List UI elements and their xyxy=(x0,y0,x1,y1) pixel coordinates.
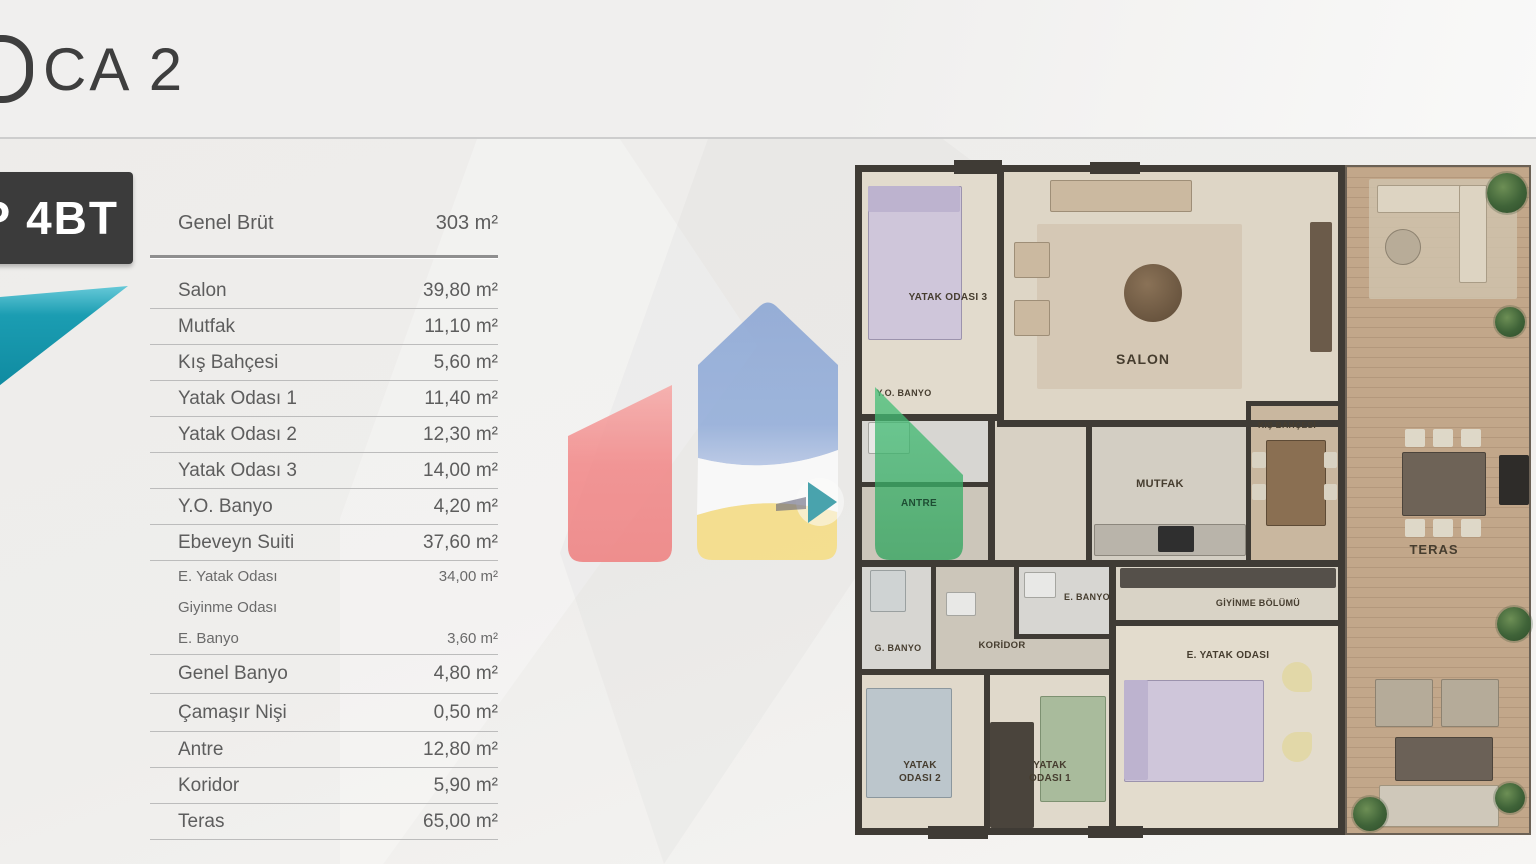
chair xyxy=(1324,484,1337,500)
row-value: 11,40 m² xyxy=(424,388,498,410)
wall-stub xyxy=(1090,162,1140,174)
table-row: Salon 39,80 m² xyxy=(150,273,498,309)
terrace-lounge-chair xyxy=(1375,679,1433,727)
terrace-table xyxy=(1385,229,1421,265)
plant xyxy=(1497,607,1531,641)
table-row: Çamaşır Nişi 0,50 m² xyxy=(150,694,498,732)
row-label: Genel Banyo xyxy=(150,663,288,685)
shower xyxy=(870,570,906,612)
winter-garden-table xyxy=(1266,440,1326,526)
terrace-chair xyxy=(1405,429,1425,447)
table-row: Yatak Odası 1 11,40 m² xyxy=(150,381,498,417)
row-label: Giyinme Odası xyxy=(150,599,277,616)
chair xyxy=(1324,452,1337,468)
row-value: 3,60 m² xyxy=(447,630,498,647)
row-value: 4,20 m² xyxy=(434,496,498,518)
wall-stub xyxy=(954,160,1002,174)
row-label: Salon xyxy=(150,280,227,302)
wall xyxy=(1116,620,1338,626)
plant xyxy=(1353,797,1387,831)
wall xyxy=(988,414,995,562)
wc-fixture xyxy=(946,592,976,616)
wall xyxy=(1014,567,1019,639)
wall xyxy=(1246,401,1338,406)
row-value: 12,80 m² xyxy=(423,739,498,761)
room-label-mutfak: MUTFAK xyxy=(1127,478,1193,492)
table-row: Y.O. Banyo 4,20 m² xyxy=(150,489,498,525)
row-value: 11,10 m² xyxy=(424,316,498,338)
page-title: CA 2 xyxy=(43,35,185,104)
project-title: CA 2 xyxy=(0,34,185,104)
wall-stub xyxy=(928,826,988,839)
row-label: Genel Brüt xyxy=(150,212,274,235)
table-row-gross: Genel Brüt 303 m² xyxy=(150,195,498,251)
table-row: Giyinme Odası xyxy=(150,592,498,623)
table-row: Kış Bahçesi 5,60 m² xyxy=(150,345,498,381)
row-value: 5,90 m² xyxy=(434,775,498,797)
watermark-house-blue xyxy=(698,303,838,466)
area-table: Genel Brüt 303 m² Salon 39,80 m² Mutfak … xyxy=(150,195,498,840)
room-label-e-yatak-odasi: E. YATAK ODASI xyxy=(1170,650,1286,663)
row-label: Ebeveyn Suiti xyxy=(150,532,294,554)
row-value: 39,80 m² xyxy=(423,280,498,302)
plant xyxy=(1495,307,1525,337)
table-row: Antre 12,80 m² xyxy=(150,732,498,768)
room-label-g-banyo: G. BANYO xyxy=(866,643,930,654)
room-label-antre: ANTRE xyxy=(893,498,945,511)
wall xyxy=(1014,634,1114,639)
chair xyxy=(1252,452,1266,468)
terrace-lounger xyxy=(1379,785,1499,827)
clipped-letter-glyph xyxy=(0,35,33,103)
terrace-lounge-chair xyxy=(1441,679,1499,727)
terrace-chair xyxy=(1461,429,1481,447)
row-label: Y.O. Banyo xyxy=(150,496,273,518)
bed xyxy=(1040,696,1106,802)
row-label: Yatak Odası 2 xyxy=(150,424,297,446)
row-value: 303 m² xyxy=(436,212,498,235)
row-label: Çamaşır Nişi xyxy=(150,702,287,724)
room-label-koridor: KORİDOR xyxy=(969,640,1035,652)
salon-sofa xyxy=(1050,180,1192,212)
terrace-chair xyxy=(1433,519,1453,537)
table-row: Mutfak 11,10 m² xyxy=(150,309,498,345)
table-separator xyxy=(150,255,498,259)
row-label: E. Yatak Odası xyxy=(150,568,278,585)
table-row: E. Yatak Odası 34,00 m² xyxy=(150,561,498,592)
row-label: Kış Bahçesi xyxy=(150,352,278,374)
table-row: Koridor 5,90 m² xyxy=(150,768,498,804)
plant xyxy=(1495,783,1525,813)
row-value: 37,60 m² xyxy=(423,532,498,554)
table-row: Ebeveyn Suiti 37,60 m² xyxy=(150,525,498,561)
row-value: 0,50 m² xyxy=(434,702,498,724)
page-header: CA 2 xyxy=(0,0,1536,139)
table-row: Genel Banyo 4,80 m² xyxy=(150,655,498,694)
room-label-yatak-odasi-1: YATAK ODASI 1 xyxy=(1023,760,1077,785)
terrace-chair xyxy=(1461,519,1481,537)
watermark-house-green xyxy=(875,387,963,560)
row-value: 5,60 m² xyxy=(434,352,498,374)
wall xyxy=(931,567,936,672)
row-value: 34,00 m² xyxy=(439,568,498,585)
row-label: Mutfak xyxy=(150,316,235,338)
table-row: Yatak Odası 3 14,00 m² xyxy=(150,453,498,489)
armchair xyxy=(1282,732,1312,762)
salon-coffee-table xyxy=(1124,264,1182,322)
terrace-dining-table xyxy=(1402,452,1486,516)
bed-pillows xyxy=(868,186,960,212)
unit-type-badge: P 4BT xyxy=(0,172,133,264)
master-bed-pillows xyxy=(1124,680,1148,780)
table-row: Teras 65,00 m² xyxy=(150,804,498,840)
row-value: 12,30 m² xyxy=(423,424,498,446)
row-value: 65,00 m² xyxy=(423,811,498,833)
room-label-e-banyo: E. BANYO xyxy=(1053,592,1121,603)
chair xyxy=(1252,484,1266,500)
row-value: 14,00 m² xyxy=(423,460,498,482)
wardrobe-row xyxy=(1120,568,1336,588)
row-label: E. Banyo xyxy=(150,630,239,647)
brand-triangle-icon xyxy=(0,286,128,390)
terrace-wall-unit xyxy=(1499,455,1529,505)
floorplan-brochure-page: { "header": { "title_visible": "CA 2" },… xyxy=(0,0,1536,864)
sink xyxy=(1024,572,1056,598)
armchair xyxy=(1282,662,1312,692)
room-label-kis-bahcesi: KIŞ BAHÇESİ xyxy=(1241,420,1333,431)
plant xyxy=(1487,173,1527,213)
terrace-chair xyxy=(1405,519,1425,537)
wall xyxy=(1086,422,1092,562)
room-label-giyinme-bolumu: GİYİNME BÖLÜMÜ xyxy=(1201,598,1315,609)
unit-type-label: P 4BT xyxy=(0,191,119,245)
room-label-yatak-odasi-2: YATAK ODASI 2 xyxy=(893,760,947,785)
terrace-coffee-table xyxy=(1395,737,1493,781)
watermark-logo xyxy=(560,290,970,570)
room-label-salon: SALON xyxy=(1113,351,1173,369)
room-label-teras: TERAS xyxy=(1404,542,1464,558)
table-row: E. Banyo 3,60 m² xyxy=(150,623,498,655)
salon-armchair xyxy=(1014,242,1050,278)
row-label: Teras xyxy=(150,811,224,833)
salon-armchair xyxy=(1014,300,1050,336)
terrace-sofa xyxy=(1459,185,1487,283)
row-label: Antre xyxy=(150,739,223,761)
room-terrace xyxy=(1345,165,1531,835)
kitchen-stove xyxy=(1158,526,1194,552)
row-label: Yatak Odası 3 xyxy=(150,460,297,482)
wall-stub xyxy=(1088,826,1143,838)
watermark-house-red xyxy=(568,385,672,562)
table-row: Yatak Odası 2 12,30 m² xyxy=(150,417,498,453)
row-label: Yatak Odası 1 xyxy=(150,388,297,410)
salon-tv-unit xyxy=(1310,222,1332,352)
terrace-chair xyxy=(1433,429,1453,447)
row-value: 4,80 m² xyxy=(434,663,498,685)
row-label: Koridor xyxy=(150,775,239,797)
